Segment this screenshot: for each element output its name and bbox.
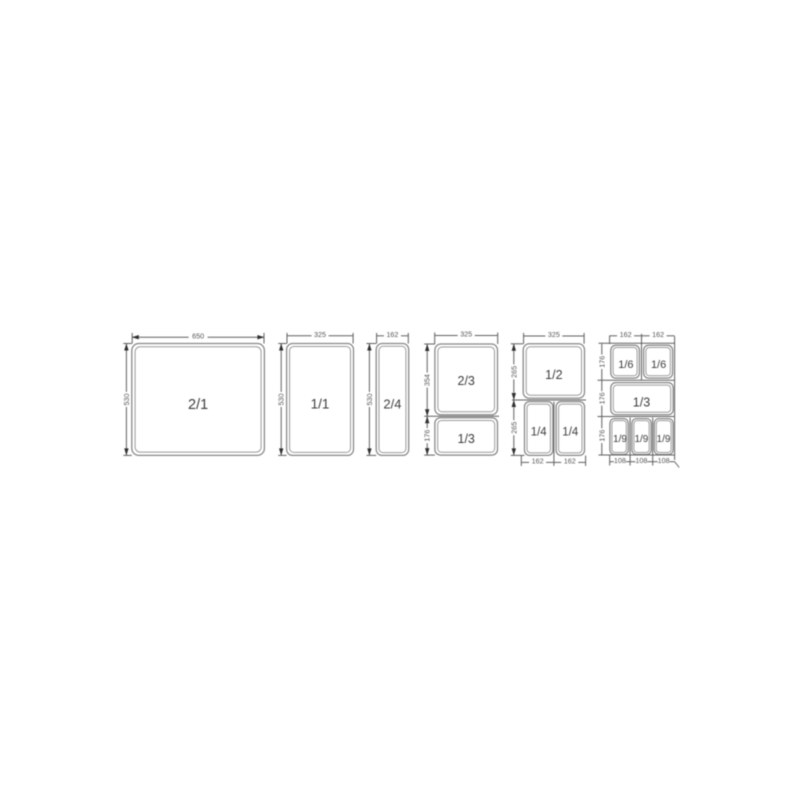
svg-text:265: 265 [509, 422, 518, 434]
svg-text:1/9: 1/9 [634, 434, 648, 445]
svg-text:1/6: 1/6 [618, 359, 633, 371]
svg-text:1/9: 1/9 [657, 434, 671, 445]
svg-text:108: 108 [658, 456, 670, 465]
svg-text:1/3: 1/3 [458, 432, 475, 446]
svg-text:2/3: 2/3 [458, 374, 475, 388]
svg-text:1/3: 1/3 [633, 396, 650, 410]
svg-text:176: 176 [423, 430, 432, 442]
svg-text:1/6: 1/6 [651, 359, 666, 371]
svg-text:162: 162 [386, 330, 398, 339]
svg-text:108: 108 [614, 456, 626, 465]
svg-text:530: 530 [277, 393, 286, 405]
svg-text:1/2: 1/2 [545, 368, 562, 382]
svg-text:162: 162 [564, 457, 576, 466]
svg-text:176: 176 [597, 430, 606, 442]
svg-text:108: 108 [635, 456, 647, 465]
svg-text:2/4: 2/4 [383, 397, 401, 412]
svg-text:325: 325 [314, 330, 326, 339]
svg-text:1/9: 1/9 [613, 434, 627, 445]
svg-text:265: 265 [509, 366, 518, 378]
svg-text:1/4: 1/4 [531, 427, 548, 439]
svg-text:354: 354 [423, 374, 432, 386]
svg-text:325: 325 [548, 330, 560, 339]
svg-text:176: 176 [597, 356, 606, 368]
svg-text:530: 530 [365, 393, 374, 405]
svg-text:650: 650 [192, 331, 204, 340]
svg-text:1/1: 1/1 [311, 397, 330, 412]
svg-text:162: 162 [620, 330, 632, 339]
svg-text:1/4: 1/4 [562, 427, 579, 439]
svg-text:2/1: 2/1 [188, 397, 208, 413]
svg-text:162: 162 [652, 330, 664, 339]
svg-text:162: 162 [532, 457, 544, 466]
svg-text:176: 176 [597, 392, 606, 404]
svg-text:530: 530 [122, 393, 131, 405]
svg-text:325: 325 [460, 330, 472, 339]
